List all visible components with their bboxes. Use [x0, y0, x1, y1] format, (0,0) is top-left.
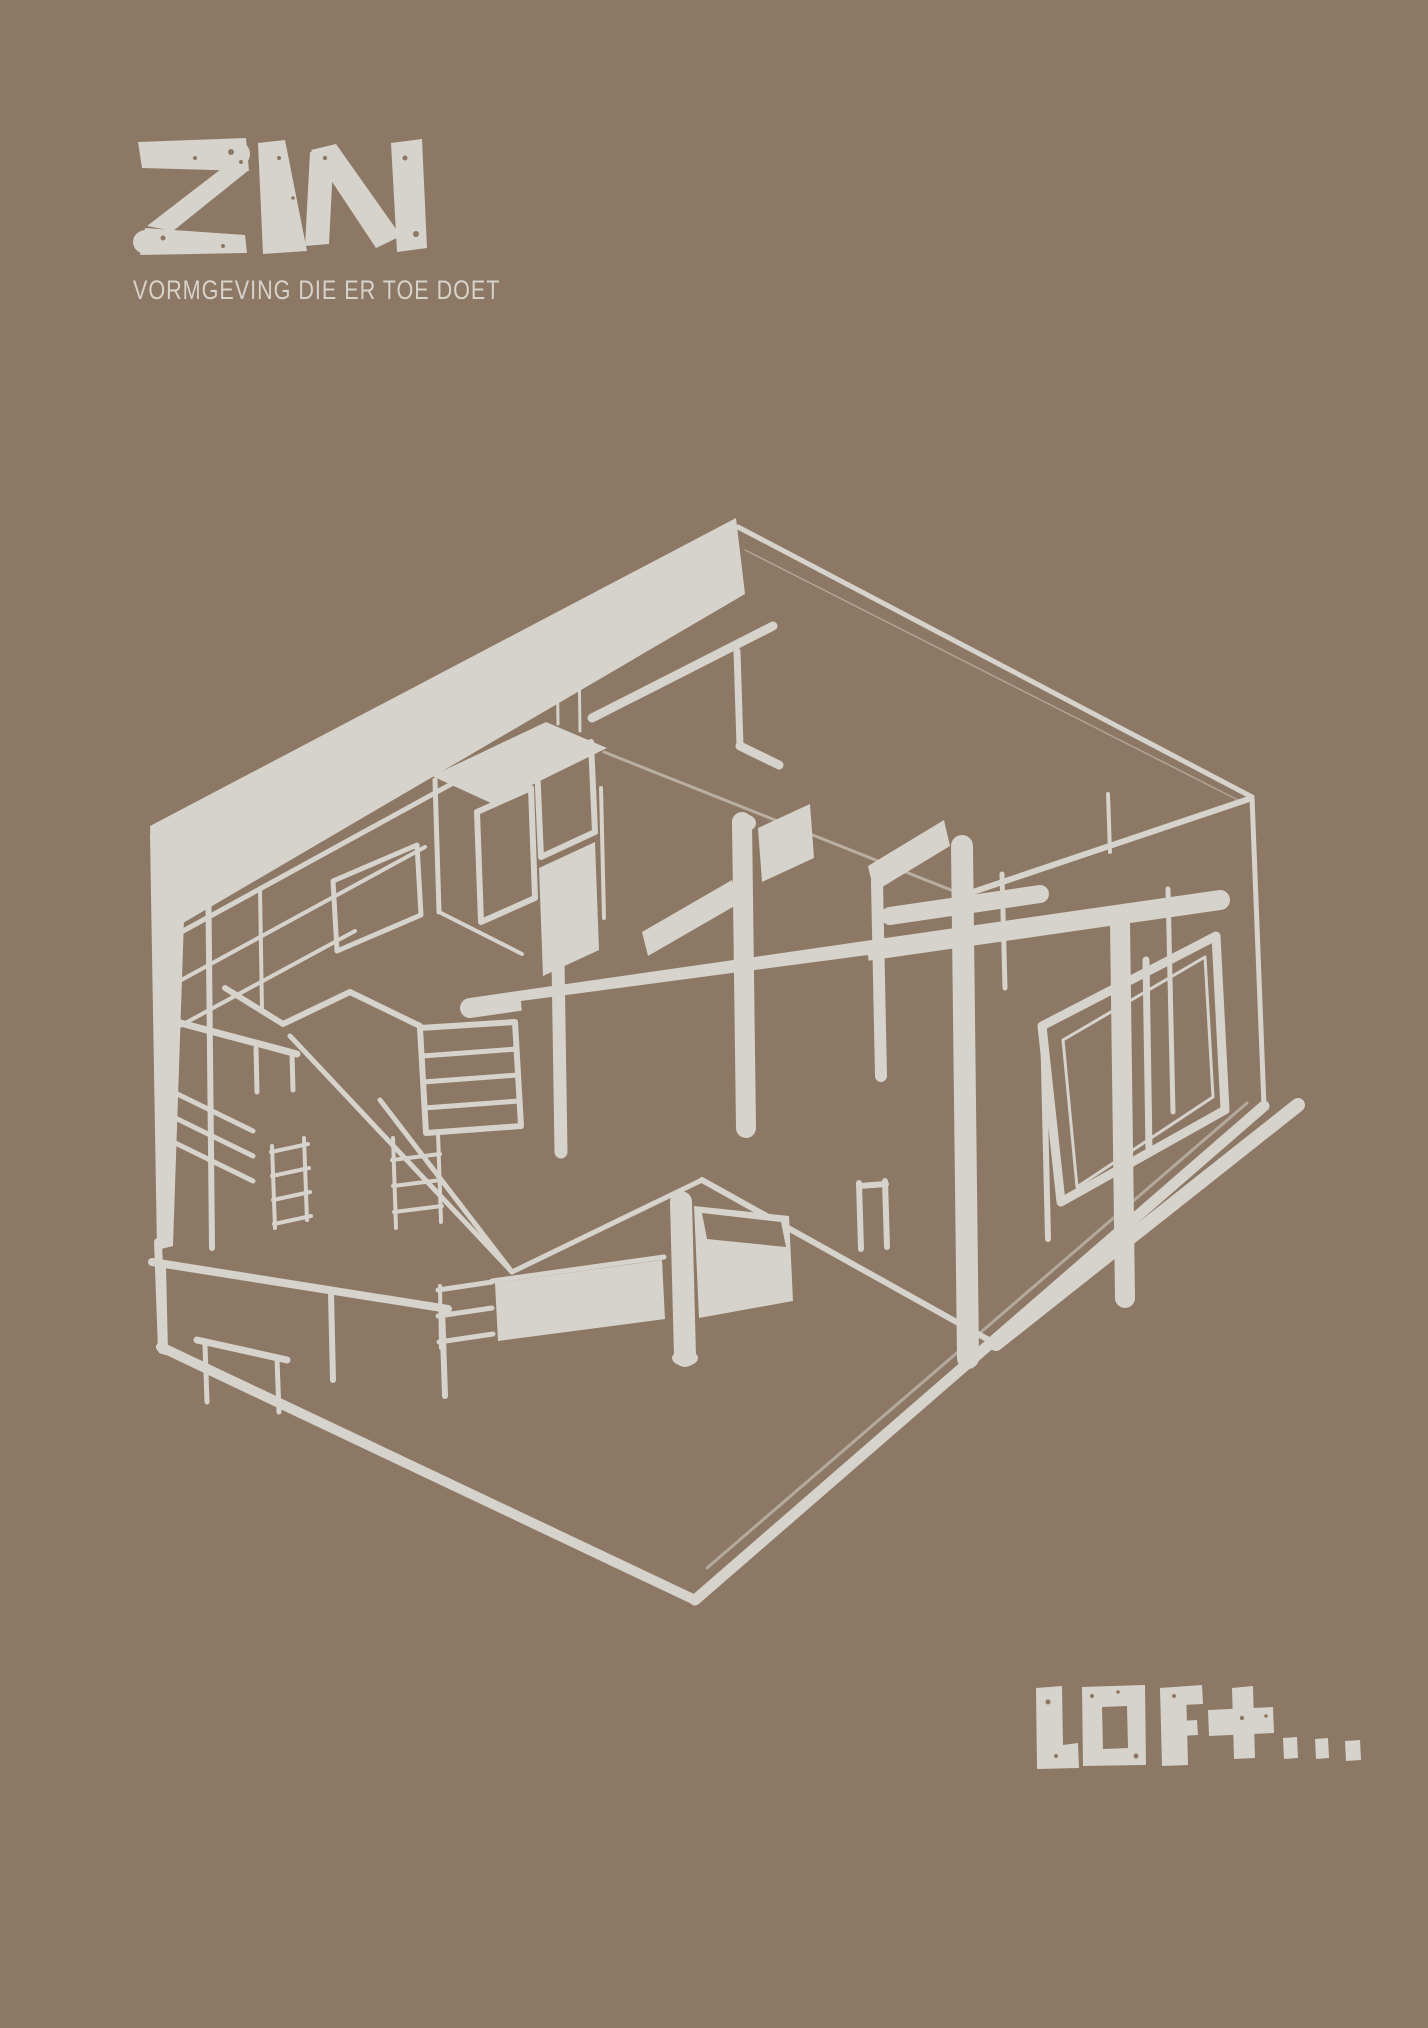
- poster-page: VORMGEVING DIE ER TOE DOET: [0, 0, 1428, 2028]
- sketch-platform: [438, 1206, 793, 1348]
- loft-letterforms: [1036, 1685, 1361, 1769]
- sketch-left-furniture: [152, 1017, 448, 1412]
- sketch-outline: [150, 518, 1264, 1600]
- loft-wordmark: [1026, 1652, 1371, 1782]
